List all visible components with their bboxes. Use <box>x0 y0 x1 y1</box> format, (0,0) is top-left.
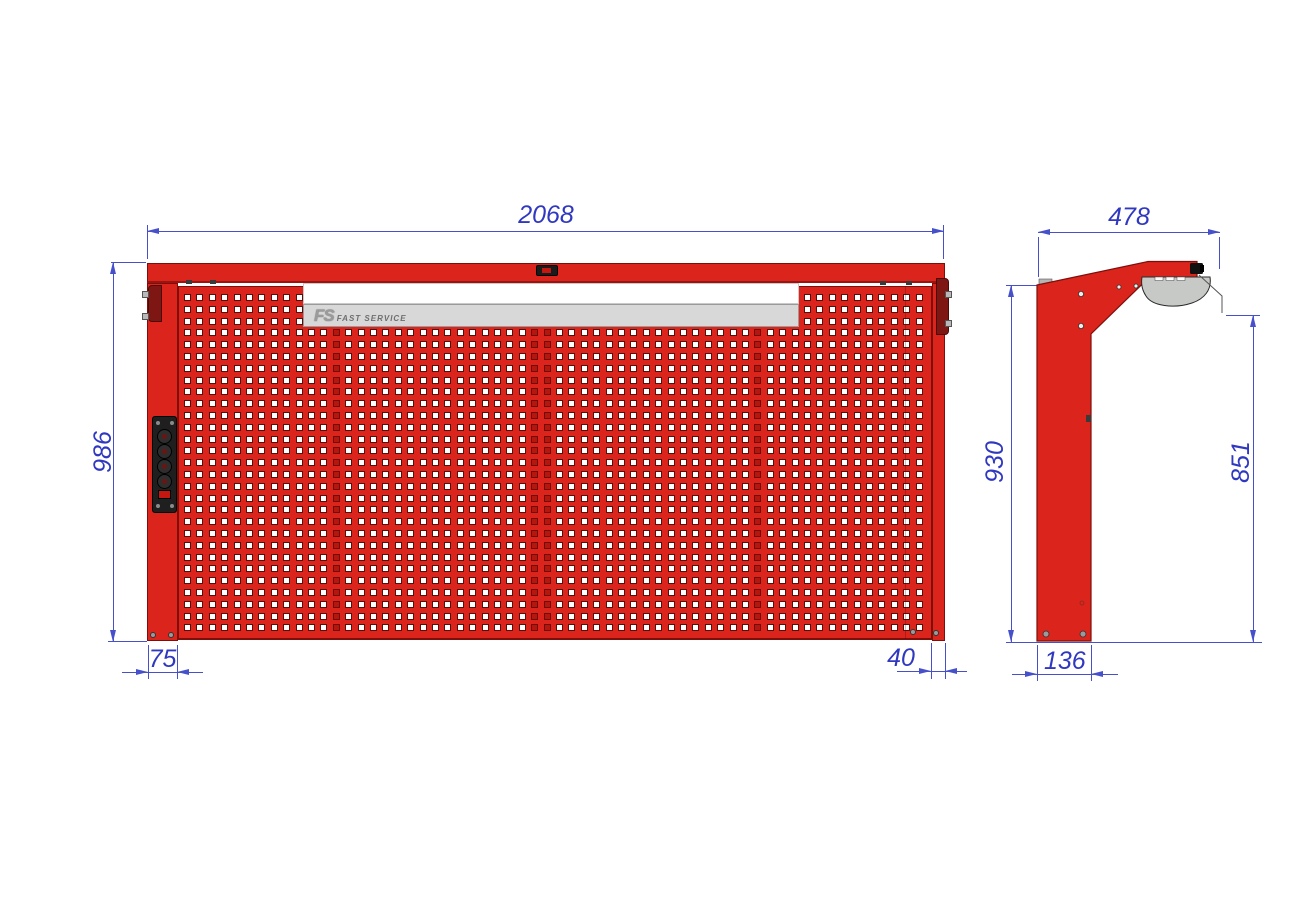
peg-hole <box>755 578 760 583</box>
peg-hole <box>334 496 339 501</box>
peg-hole <box>495 602 500 607</box>
peg-hole <box>879 555 884 560</box>
peg-hole <box>793 507 798 512</box>
peg-hole <box>272 590 277 595</box>
peg-hole <box>532 366 537 371</box>
peg-hole <box>855 437 860 442</box>
ext-line <box>111 262 146 263</box>
peg-hole <box>396 401 401 406</box>
peg-hole <box>817 625 822 630</box>
peg-hole <box>222 460 227 465</box>
peg-hole <box>520 378 525 383</box>
peg-hole <box>247 531 252 536</box>
peg-hole <box>371 566 376 571</box>
peg-hole <box>235 330 240 335</box>
peg-hole <box>346 519 351 524</box>
peg-hole <box>197 496 202 501</box>
peg-hole <box>706 378 711 383</box>
peg-hole <box>669 543 674 548</box>
peg-hole <box>297 578 302 583</box>
peg-hole <box>396 330 401 335</box>
peg-hole <box>631 366 636 371</box>
peg-hole <box>408 614 413 619</box>
peg-hole <box>334 507 339 512</box>
dim-offset-left: 75 <box>147 646 178 672</box>
peg-hole <box>396 625 401 630</box>
peg-hole <box>445 437 450 442</box>
peg-hole <box>755 543 760 548</box>
peg-hole <box>805 484 810 489</box>
peg-hole <box>210 413 215 418</box>
peg-hole <box>210 625 215 630</box>
peg-hole <box>272 531 277 536</box>
peg-hole <box>743 578 748 583</box>
peg-hole <box>855 354 860 359</box>
peg-hole <box>483 484 488 489</box>
peg-hole <box>855 448 860 453</box>
peg-hole <box>408 378 413 383</box>
peg-hole <box>210 330 215 335</box>
peg-hole <box>321 590 326 595</box>
peg-hole <box>619 590 624 595</box>
peg-hole <box>421 366 426 371</box>
peg-hole <box>706 425 711 430</box>
peg-hole <box>433 507 438 512</box>
peg-hole <box>917 625 922 630</box>
peg-hole <box>743 342 748 347</box>
peg-hole <box>371 578 376 583</box>
power-outlet <box>157 444 172 459</box>
peg-hole <box>445 555 450 560</box>
peg-hole <box>321 472 326 477</box>
peg-hole <box>718 330 723 335</box>
peg-hole <box>396 472 401 477</box>
base-screw <box>150 632 156 638</box>
peg-hole <box>867 366 872 371</box>
peg-hole <box>359 425 364 430</box>
peg-hole <box>520 425 525 430</box>
peg-hole <box>681 519 686 524</box>
peg-hole <box>817 460 822 465</box>
peg-hole <box>656 531 661 536</box>
peg-hole <box>619 543 624 548</box>
peg-hole <box>458 625 463 630</box>
peg-hole <box>644 590 649 595</box>
peg-hole <box>892 566 897 571</box>
peg-hole <box>569 602 574 607</box>
peg-hole <box>247 366 252 371</box>
peg-hole <box>359 460 364 465</box>
peg-hole <box>507 484 512 489</box>
peg-hole <box>830 378 835 383</box>
peg-hole <box>545 448 550 453</box>
peg-hole <box>867 555 872 560</box>
peg-hole <box>892 378 897 383</box>
peg-hole <box>396 614 401 619</box>
peg-hole <box>780 354 785 359</box>
peg-hole <box>879 448 884 453</box>
peg-hole <box>718 625 723 630</box>
peg-hole <box>793 378 798 383</box>
peg-hole <box>235 614 240 619</box>
peg-hole <box>284 625 289 630</box>
peg-hole <box>582 519 587 524</box>
peg-hole <box>817 602 822 607</box>
peg-hole <box>793 543 798 548</box>
peg-hole <box>892 590 897 595</box>
peg-hole <box>656 389 661 394</box>
peg-hole <box>780 437 785 442</box>
peg-hole <box>408 555 413 560</box>
peg-hole <box>594 555 599 560</box>
peg-hole <box>693 401 698 406</box>
peg-hole <box>433 496 438 501</box>
peg-hole <box>507 602 512 607</box>
peg-hole <box>669 413 674 418</box>
peg-hole <box>545 366 550 371</box>
peg-hole <box>867 342 872 347</box>
peg-hole <box>458 413 463 418</box>
peg-hole <box>334 566 339 571</box>
peg-hole <box>619 614 624 619</box>
peg-hole <box>507 460 512 465</box>
peg-hole <box>197 472 202 477</box>
peg-hole <box>235 342 240 347</box>
peg-hole <box>483 625 488 630</box>
peg-hole <box>693 484 698 489</box>
peg-hole <box>594 484 599 489</box>
peg-hole <box>607 389 612 394</box>
peg-hole <box>383 496 388 501</box>
peg-hole <box>532 378 537 383</box>
peg-hole <box>346 496 351 501</box>
peg-hole <box>669 496 674 501</box>
peg-hole <box>532 342 537 347</box>
peg-hole <box>879 531 884 536</box>
peg-hole <box>582 425 587 430</box>
peg-hole <box>594 472 599 477</box>
peg-hole <box>359 448 364 453</box>
peg-hole <box>607 330 612 335</box>
peg-hole <box>545 354 550 359</box>
peg-hole <box>346 614 351 619</box>
peg-hole <box>458 578 463 583</box>
peg-hole <box>495 425 500 430</box>
peg-hole <box>594 625 599 630</box>
peg-hole <box>582 507 587 512</box>
peg-hole <box>210 425 215 430</box>
peg-hole <box>768 519 773 524</box>
peg-hole <box>718 413 723 418</box>
peg-hole <box>917 555 922 560</box>
peg-hole <box>718 484 723 489</box>
peg-hole <box>408 496 413 501</box>
peg-hole <box>842 507 847 512</box>
peg-hole <box>607 354 612 359</box>
peg-hole <box>805 519 810 524</box>
peg-hole <box>867 602 872 607</box>
peg-hole <box>470 507 475 512</box>
peg-hole <box>718 602 723 607</box>
peg-hole <box>830 472 835 477</box>
peg-hole <box>569 342 574 347</box>
peg-hole <box>222 519 227 524</box>
peg-hole <box>892 354 897 359</box>
peg-hole <box>235 319 240 324</box>
peg-hole <box>532 507 537 512</box>
peg-hole <box>483 531 488 536</box>
peg-hole <box>185 307 190 312</box>
peg-hole <box>545 602 550 607</box>
peg-hole <box>334 531 339 536</box>
peg-hole <box>706 437 711 442</box>
peg-hole <box>569 578 574 583</box>
peg-hole <box>445 378 450 383</box>
peg-hole <box>433 555 438 560</box>
base-screw <box>168 632 174 638</box>
peg-hole <box>259 425 264 430</box>
peg-hole <box>656 354 661 359</box>
peg-hole <box>520 590 525 595</box>
peg-hole <box>693 330 698 335</box>
peg-hole <box>693 566 698 571</box>
peg-hole <box>408 625 413 630</box>
peg-hole <box>768 413 773 418</box>
peg-hole <box>297 378 302 383</box>
peg-hole <box>644 472 649 477</box>
peg-hole <box>321 413 326 418</box>
peg-hole <box>631 413 636 418</box>
peg-hole <box>545 413 550 418</box>
lamp-vent-slot <box>1177 277 1185 281</box>
peg-hole <box>297 342 302 347</box>
peg-hole <box>656 543 661 548</box>
peg-hole <box>669 401 674 406</box>
peg-hole <box>731 437 736 442</box>
peg-hole <box>458 437 463 442</box>
peg-hole <box>272 484 277 489</box>
peg-hole <box>470 602 475 607</box>
peg-hole <box>259 389 264 394</box>
peg-hole <box>693 519 698 524</box>
peg-hole <box>817 366 822 371</box>
peg-hole <box>433 342 438 347</box>
peg-hole <box>185 602 190 607</box>
peg-hole <box>235 295 240 300</box>
peg-hole <box>445 507 450 512</box>
peg-hole <box>470 614 475 619</box>
peg-hole <box>532 519 537 524</box>
peg-hole <box>780 507 785 512</box>
peg-hole <box>235 496 240 501</box>
peg-hole <box>743 425 748 430</box>
peg-hole <box>693 496 698 501</box>
peg-hole <box>495 507 500 512</box>
peg-hole <box>371 413 376 418</box>
peg-hole <box>582 389 587 394</box>
peg-hole <box>879 472 884 477</box>
peg-hole <box>706 366 711 371</box>
peg-hole <box>867 307 872 312</box>
peg-hole <box>793 437 798 442</box>
peg-hole <box>545 378 550 383</box>
peg-hole <box>693 448 698 453</box>
peg-hole <box>507 378 512 383</box>
peg-hole <box>830 307 835 312</box>
peg-hole <box>185 614 190 619</box>
peg-hole <box>421 519 426 524</box>
peg-hole <box>383 342 388 347</box>
peg-hole <box>867 590 872 595</box>
peg-hole <box>879 425 884 430</box>
peg-hole <box>644 566 649 571</box>
peg-hole <box>235 472 240 477</box>
peg-hole <box>507 590 512 595</box>
peg-hole <box>879 625 884 630</box>
peg-hole <box>272 566 277 571</box>
peg-hole <box>731 460 736 465</box>
peg-hole <box>396 484 401 489</box>
peg-hole <box>222 543 227 548</box>
peg-hole <box>669 330 674 335</box>
peg-hole <box>768 531 773 536</box>
peg-hole <box>917 401 922 406</box>
peg-hole <box>669 578 674 583</box>
peg-hole <box>259 496 264 501</box>
peg-hole <box>731 555 736 560</box>
peg-hole <box>607 378 612 383</box>
peg-hole <box>607 590 612 595</box>
peg-hole <box>297 590 302 595</box>
peg-hole <box>855 496 860 501</box>
peg-hole <box>483 425 488 430</box>
peg-hole <box>359 614 364 619</box>
peg-hole <box>917 295 922 300</box>
peg-hole <box>359 555 364 560</box>
peg-hole <box>731 413 736 418</box>
peg-hole <box>631 425 636 430</box>
peg-hole <box>569 354 574 359</box>
technical-drawing-canvas: { "drawing": { "type": "2D dimensioned t… <box>0 0 1300 919</box>
peg-hole <box>495 437 500 442</box>
peg-hole <box>619 472 624 477</box>
pegboard-seam-line <box>905 287 906 639</box>
peg-hole <box>582 401 587 406</box>
peg-hole <box>433 566 438 571</box>
peg-hole <box>507 342 512 347</box>
peg-hole <box>867 319 872 324</box>
peg-hole <box>582 472 587 477</box>
peg-hole <box>185 496 190 501</box>
peg-hole <box>259 590 264 595</box>
peg-hole <box>408 401 413 406</box>
peg-hole <box>731 378 736 383</box>
peg-hole <box>879 484 884 489</box>
peg-hole <box>855 531 860 536</box>
peg-hole <box>681 378 686 383</box>
peg-hole <box>383 614 388 619</box>
peg-hole <box>631 555 636 560</box>
peg-hole <box>507 507 512 512</box>
peg-hole <box>247 578 252 583</box>
peg-hole <box>396 413 401 418</box>
peg-hole <box>346 425 351 430</box>
peg-hole <box>569 543 574 548</box>
peg-hole <box>247 295 252 300</box>
peg-hole <box>743 496 748 501</box>
peg-hole <box>272 330 277 335</box>
peg-hole <box>644 507 649 512</box>
peg-hole <box>483 389 488 394</box>
peg-hole <box>631 625 636 630</box>
peg-hole <box>507 625 512 630</box>
peg-hole <box>321 401 326 406</box>
peg-hole <box>222 413 227 418</box>
peg-hole <box>495 378 500 383</box>
peg-hole <box>917 578 922 583</box>
peg-hole <box>197 484 202 489</box>
peg-hole <box>520 614 525 619</box>
peg-hole <box>495 625 500 630</box>
peg-hole <box>768 625 773 630</box>
peg-hole <box>656 578 661 583</box>
peg-hole <box>483 378 488 383</box>
peg-hole <box>383 578 388 583</box>
peg-hole <box>817 472 822 477</box>
peg-hole <box>780 625 785 630</box>
peg-hole <box>631 354 636 359</box>
peg-hole <box>359 366 364 371</box>
peg-hole <box>830 366 835 371</box>
peg-hole <box>892 625 897 630</box>
peg-hole <box>334 378 339 383</box>
peg-hole <box>421 602 426 607</box>
peg-hole <box>780 578 785 583</box>
peg-hole <box>520 625 525 630</box>
peg-hole <box>185 330 190 335</box>
peg-hole <box>693 625 698 630</box>
peg-hole <box>830 566 835 571</box>
peg-hole <box>817 531 822 536</box>
peg-hole <box>755 460 760 465</box>
peg-hole <box>718 378 723 383</box>
peg-hole <box>656 460 661 465</box>
peg-hole <box>631 389 636 394</box>
peg-hole <box>718 507 723 512</box>
peg-hole <box>396 378 401 383</box>
peg-hole <box>669 484 674 489</box>
peg-hole <box>259 625 264 630</box>
peg-hole <box>371 425 376 430</box>
peg-hole <box>408 602 413 607</box>
peg-hole <box>247 413 252 418</box>
peg-hole <box>507 496 512 501</box>
peg-hole <box>842 437 847 442</box>
peg-hole <box>706 602 711 607</box>
peg-hole <box>210 543 215 548</box>
peg-hole <box>718 448 723 453</box>
peg-hole <box>842 496 847 501</box>
peg-hole <box>334 625 339 630</box>
peg-hole <box>557 378 562 383</box>
peg-hole <box>594 401 599 406</box>
peg-hole <box>458 555 463 560</box>
peg-hole <box>879 519 884 524</box>
peg-hole <box>619 602 624 607</box>
peg-hole <box>259 507 264 512</box>
peg-hole <box>383 437 388 442</box>
peg-hole <box>359 625 364 630</box>
